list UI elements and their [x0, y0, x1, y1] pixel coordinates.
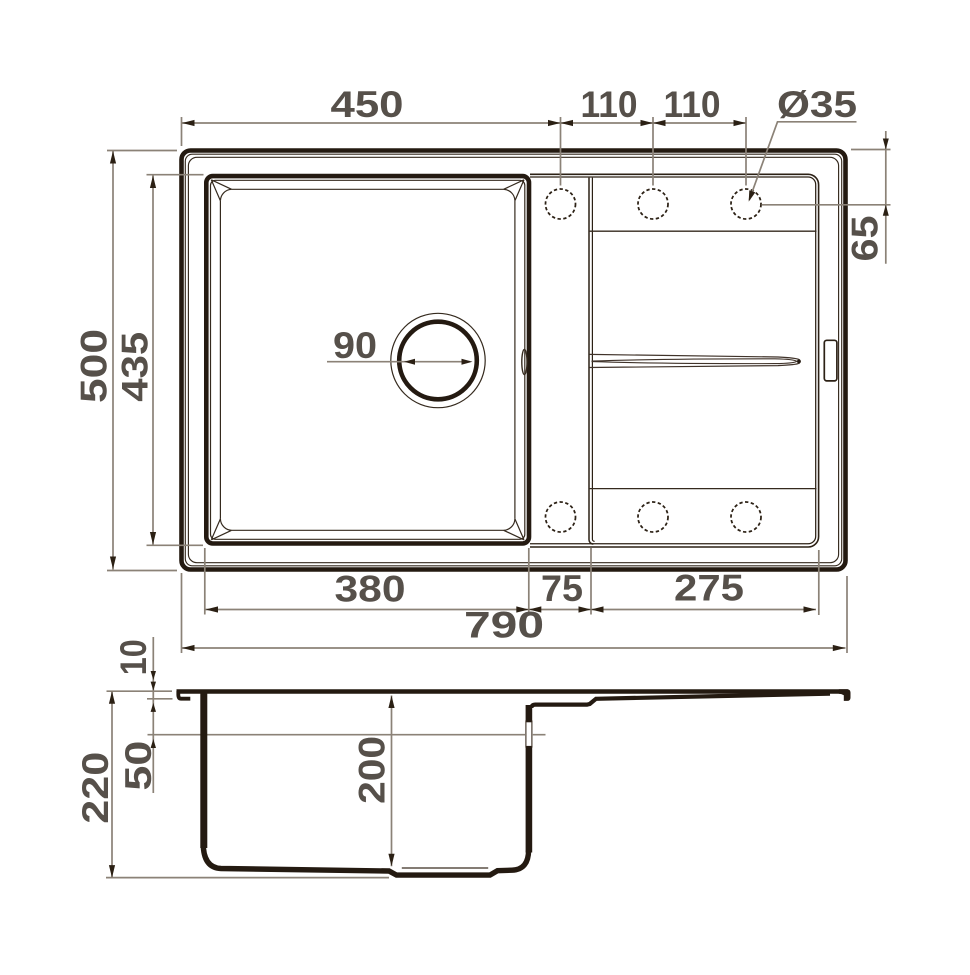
svg-text:790: 790 [464, 605, 544, 646]
svg-text:380: 380 [335, 569, 406, 610]
svg-text:450: 450 [331, 84, 404, 125]
svg-text:110: 110 [664, 84, 721, 125]
svg-text:220: 220 [75, 752, 116, 824]
svg-text:275: 275 [674, 568, 744, 609]
svg-text:Ø35: Ø35 [777, 84, 857, 125]
svg-text:65: 65 [845, 216, 886, 262]
svg-text:50: 50 [118, 741, 159, 791]
svg-text:75: 75 [541, 568, 583, 609]
svg-text:10: 10 [113, 639, 154, 675]
svg-text:90: 90 [333, 325, 377, 366]
svg-text:200: 200 [352, 736, 393, 804]
svg-text:110: 110 [581, 84, 638, 125]
svg-text:500: 500 [74, 329, 115, 403]
svg-text:435: 435 [115, 332, 156, 402]
